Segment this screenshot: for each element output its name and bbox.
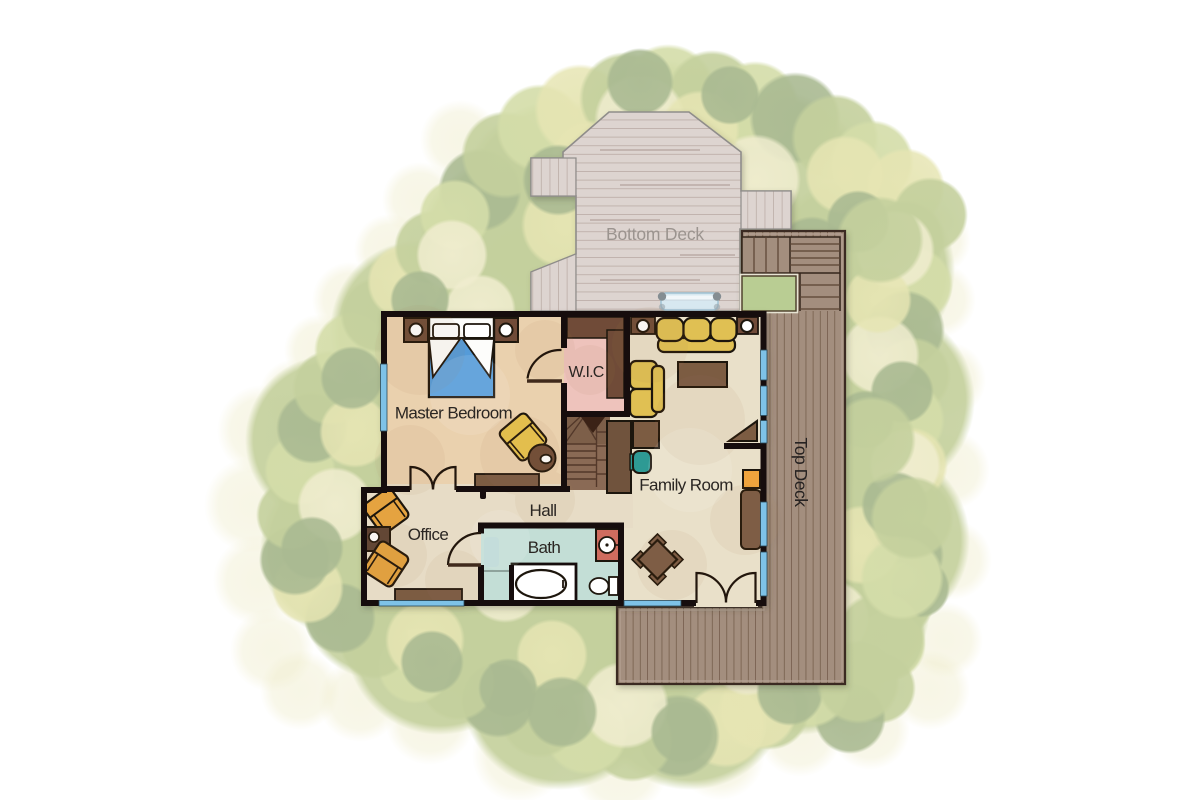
svg-text:Family Room: Family Room bbox=[639, 476, 733, 495]
svg-text:Master Bedroom: Master Bedroom bbox=[395, 404, 513, 423]
svg-text:Office: Office bbox=[408, 525, 449, 544]
svg-text:Hall: Hall bbox=[530, 501, 557, 520]
svg-text:Top Deck: Top Deck bbox=[791, 438, 811, 508]
svg-text:Bottom Deck: Bottom Deck bbox=[606, 224, 704, 244]
svg-text:Bath: Bath bbox=[528, 538, 561, 557]
svg-text:W.I.C: W.I.C bbox=[568, 364, 603, 381]
